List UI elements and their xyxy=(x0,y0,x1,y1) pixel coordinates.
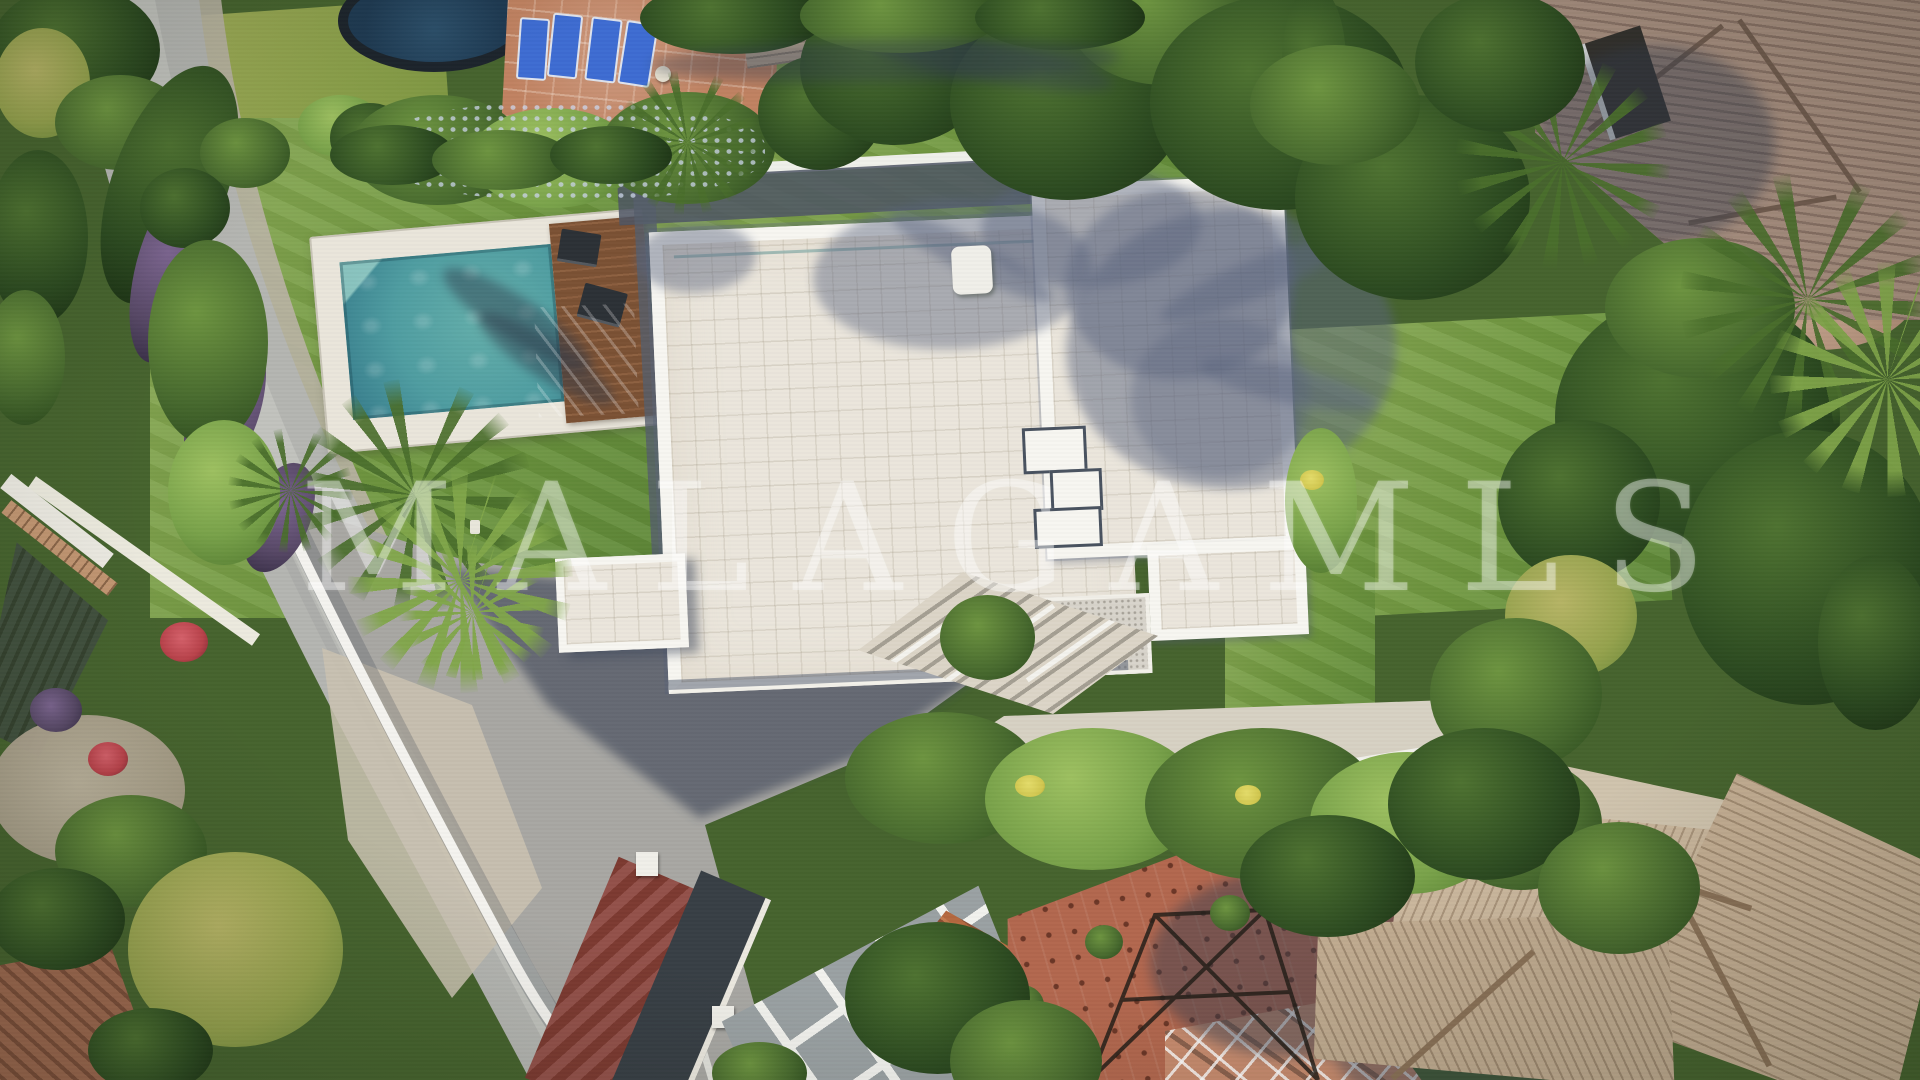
white-shower-fixture xyxy=(951,245,993,295)
dark-sun-lounger xyxy=(557,229,602,268)
blue-sun-lounger xyxy=(516,17,550,81)
yellow-flowers xyxy=(1015,775,1045,797)
bougainvillea-bush xyxy=(30,688,82,732)
aerial-photo: MALAGAMLS xyxy=(0,0,1920,1080)
potted-bush xyxy=(1210,895,1250,931)
red-flower-bush xyxy=(88,742,128,776)
tree xyxy=(1538,822,1700,954)
west-garden-steps xyxy=(534,303,639,417)
tree xyxy=(1250,45,1420,165)
watermark-text: MALAGAMLS xyxy=(300,452,1750,626)
potted-bush xyxy=(1085,925,1123,959)
yellow-flowers xyxy=(1235,785,1261,805)
red-flower-bush xyxy=(160,622,208,662)
pool-hedge xyxy=(550,126,672,184)
gate-pillar xyxy=(636,852,658,876)
garden-bush xyxy=(148,240,268,445)
shrub-band xyxy=(1240,815,1415,937)
garden-bush xyxy=(140,168,230,248)
